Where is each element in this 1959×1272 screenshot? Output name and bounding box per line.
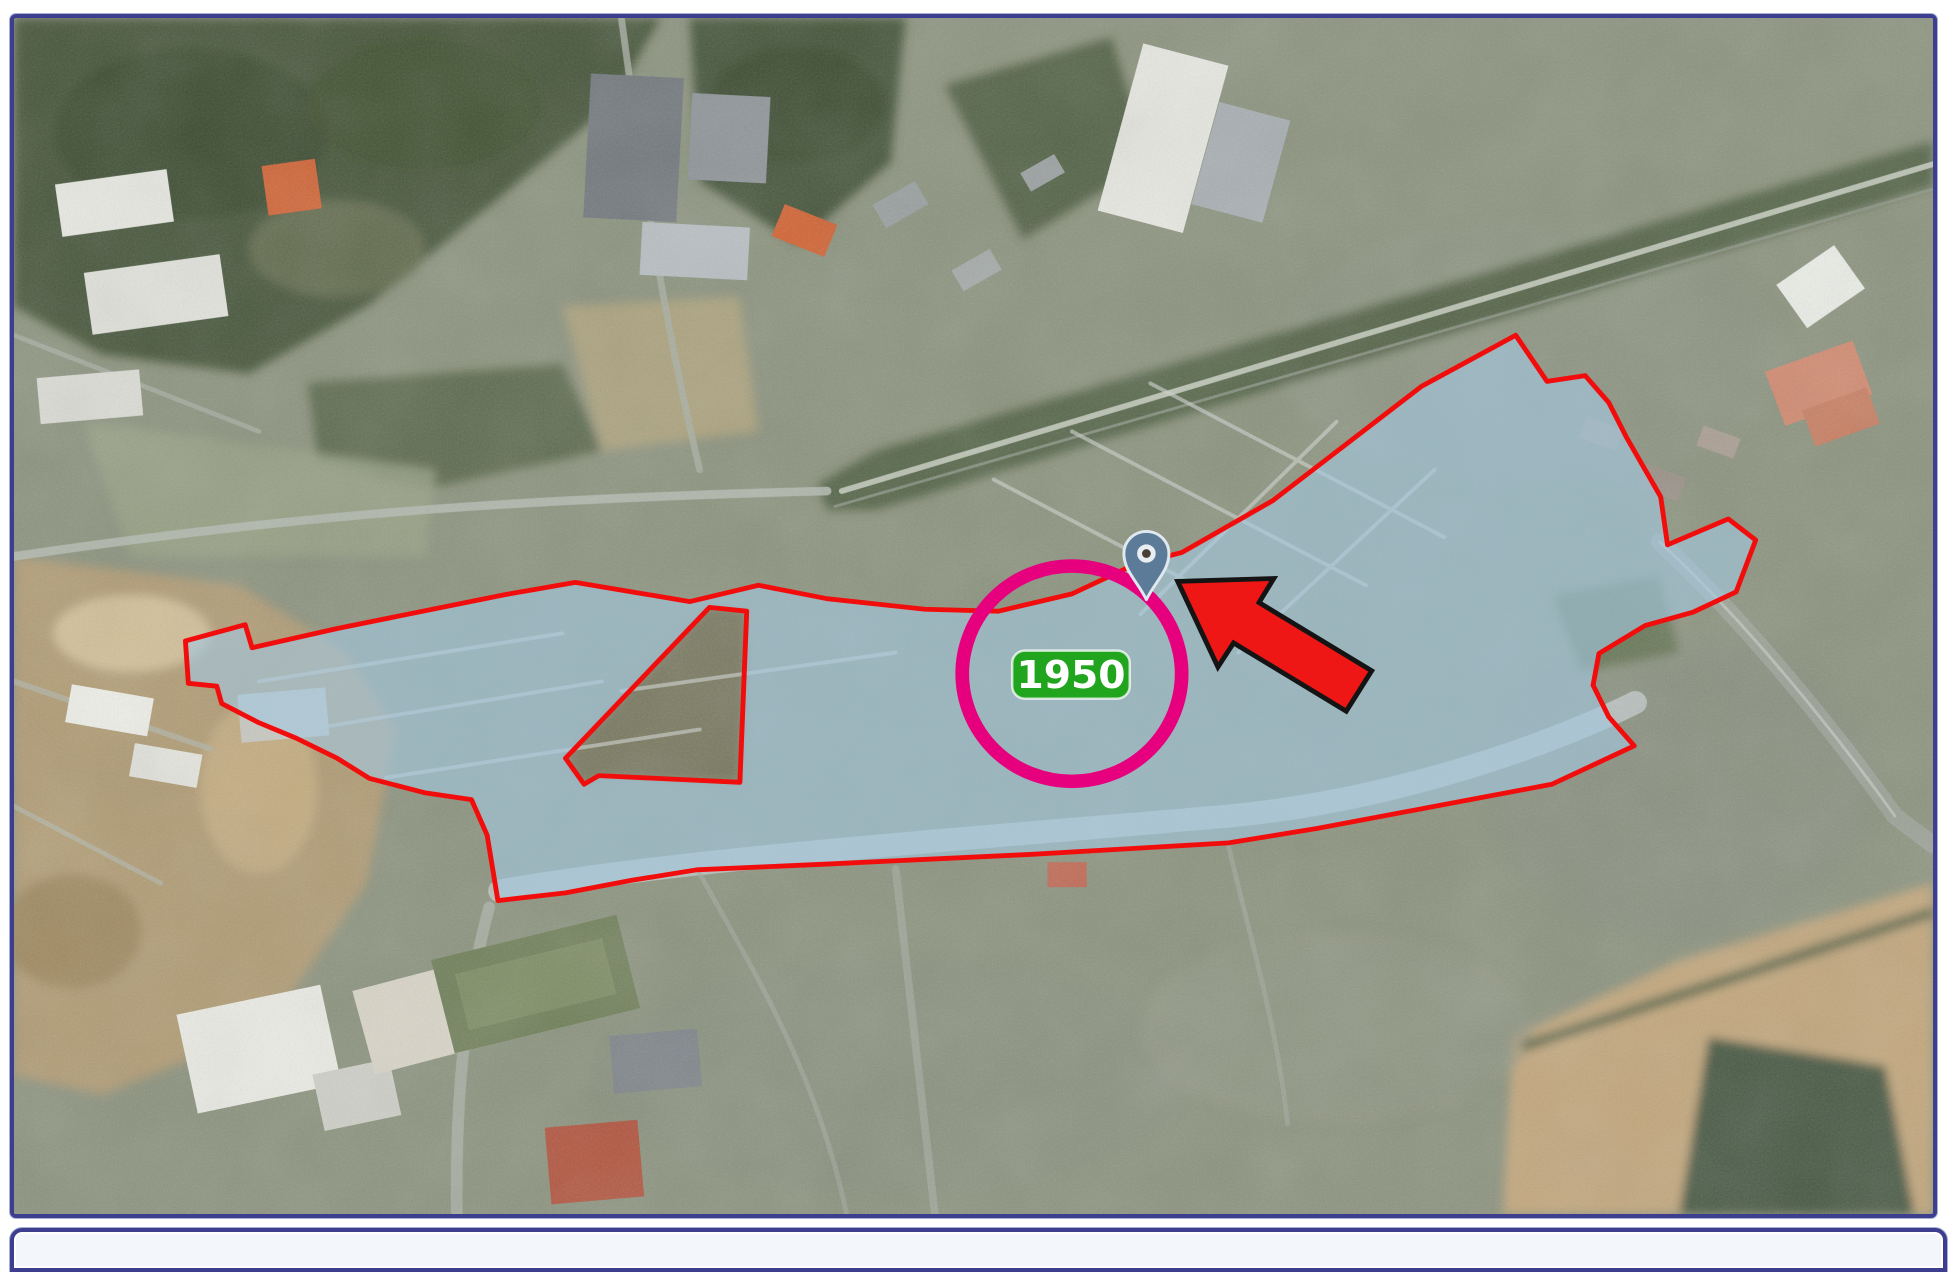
map-figure-frame: 1950	[10, 14, 1937, 1218]
caption-panel	[10, 1228, 1947, 1272]
year-badge: 1950	[1012, 651, 1130, 699]
aerial-map: 1950	[14, 18, 1933, 1214]
year-badge-label: 1950	[1016, 653, 1125, 698]
